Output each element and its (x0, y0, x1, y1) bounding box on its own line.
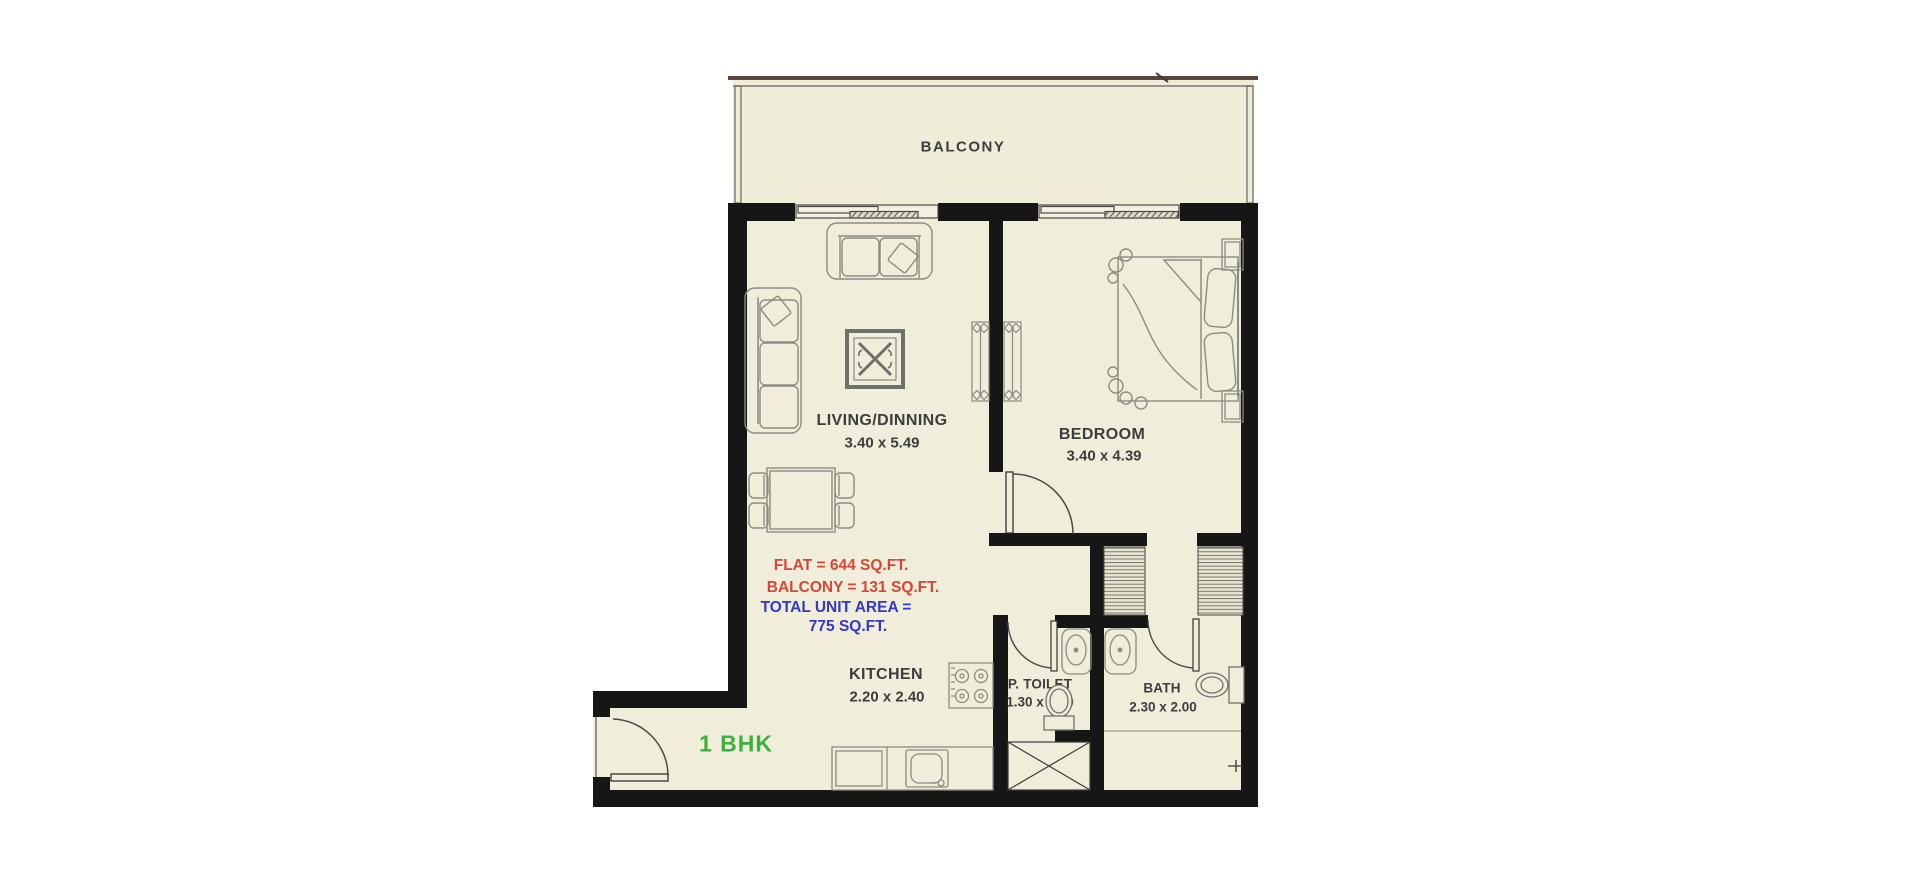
bed-icon (1108, 249, 1238, 409)
walls (593, 203, 1258, 807)
toilet-basin-icon (1062, 629, 1091, 674)
shower-area-icon (1104, 731, 1242, 772)
balcony-area-note: BALCONY = 131 SQ.FT. (767, 579, 939, 597)
entrance-door-icon (596, 717, 668, 781)
stove-icon (949, 663, 993, 708)
flat-area-note: FLAT = 644 SQ.FT. (774, 557, 909, 575)
shelf-unit-bedroom-icon (1004, 322, 1021, 401)
balcony-label: BALCONY (921, 139, 1006, 156)
living-room-dims: 3.40 x 5.49 (844, 435, 919, 452)
unit-floor (593, 203, 1258, 807)
toilet-door-icon (1008, 621, 1057, 671)
bath-door-icon (1148, 619, 1199, 671)
shelf-unit-living-icon (972, 322, 989, 401)
bedroom-door-icon (1006, 472, 1073, 534)
kitchen-counter-icon (832, 747, 993, 790)
kitchen-label: KITCHEN (849, 666, 923, 684)
toilet-dims: 1.30 x 1.50 (1006, 695, 1074, 710)
shaft-icon (1008, 742, 1090, 790)
kitchen-sink-icon (906, 750, 948, 787)
nightstand-top-icon (1222, 239, 1243, 270)
living-sliding-door-icon (796, 205, 938, 218)
floor-plan-base-drawing (0, 0, 1920, 892)
total-area-value: 775 SQ.FT. (809, 618, 887, 636)
bath-wc-icon (1196, 667, 1244, 703)
balcony-roof-line (728, 73, 1258, 82)
floor-plan: BALCONY LIVING/DINNING 3.40 x 5.49 BEDRO… (0, 0, 1920, 892)
loveseat-sofa-icon (827, 223, 932, 279)
rug-icon (847, 331, 903, 387)
unit-type-label: 1 BHK (699, 731, 773, 758)
toilet-label: P. TOILET (1008, 677, 1072, 692)
bath-basin-icon (1105, 629, 1136, 674)
bedroom-label: BEDROOM (1059, 426, 1145, 444)
bedroom-dims: 3.40 x 4.39 (1066, 448, 1141, 465)
bath-dims: 2.30 x 2.00 (1129, 700, 1197, 715)
wardrobe-left-icon (1104, 547, 1145, 615)
total-area-label: TOTAL UNIT AREA = (761, 599, 912, 617)
wardrobe-right-icon (1198, 547, 1243, 615)
bedroom-window-icon (1039, 205, 1179, 218)
living-room-label: LIVING/DINNING (817, 412, 948, 430)
kitchen-dims: 2.20 x 2.40 (849, 689, 924, 706)
dining-table-icon (749, 468, 854, 532)
bath-label: BATH (1143, 681, 1180, 696)
three-seat-sofa-icon (745, 288, 801, 433)
nightstand-bottom-icon (1222, 391, 1243, 422)
floor-plan-detail-drawing (0, 0, 1920, 892)
